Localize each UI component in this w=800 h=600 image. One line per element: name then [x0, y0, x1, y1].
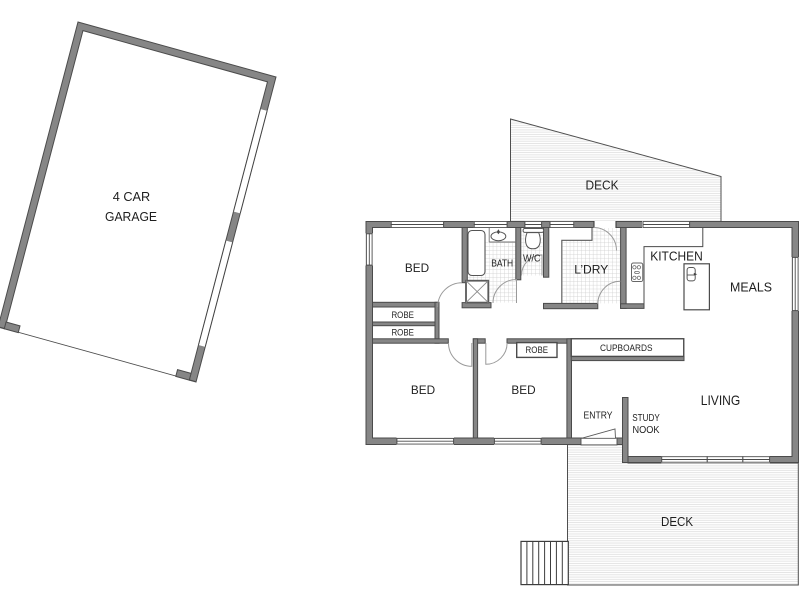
svg-text:BED: BED: [411, 385, 435, 397]
svg-text:BED: BED: [405, 263, 429, 275]
svg-text:BATH: BATH: [491, 258, 513, 270]
svg-text:ROBE: ROBE: [391, 328, 414, 339]
svg-text:MEALS: MEALS: [730, 280, 772, 294]
svg-text:4 CAR: 4 CAR: [113, 189, 151, 204]
svg-text:ENTRY: ENTRY: [584, 411, 613, 422]
svg-text:NOOK: NOOK: [633, 425, 660, 436]
svg-text:DECK: DECK: [586, 179, 620, 193]
svg-text:ROBE: ROBE: [526, 345, 549, 356]
svg-text:ROBE: ROBE: [391, 310, 414, 321]
svg-text:KITCHEN: KITCHEN: [650, 250, 703, 264]
svg-text:LIVING: LIVING: [701, 392, 741, 408]
svg-text:GARAGE: GARAGE: [105, 209, 157, 224]
svg-text:DECK: DECK: [661, 515, 694, 529]
svg-text:CUPBOARDS: CUPBOARDS: [600, 343, 653, 354]
svg-text:W/C: W/C: [523, 252, 541, 264]
svg-text:BED: BED: [511, 385, 535, 397]
svg-text:L’DRY: L’DRY: [574, 263, 608, 277]
svg-text:STUDY: STUDY: [632, 413, 660, 424]
